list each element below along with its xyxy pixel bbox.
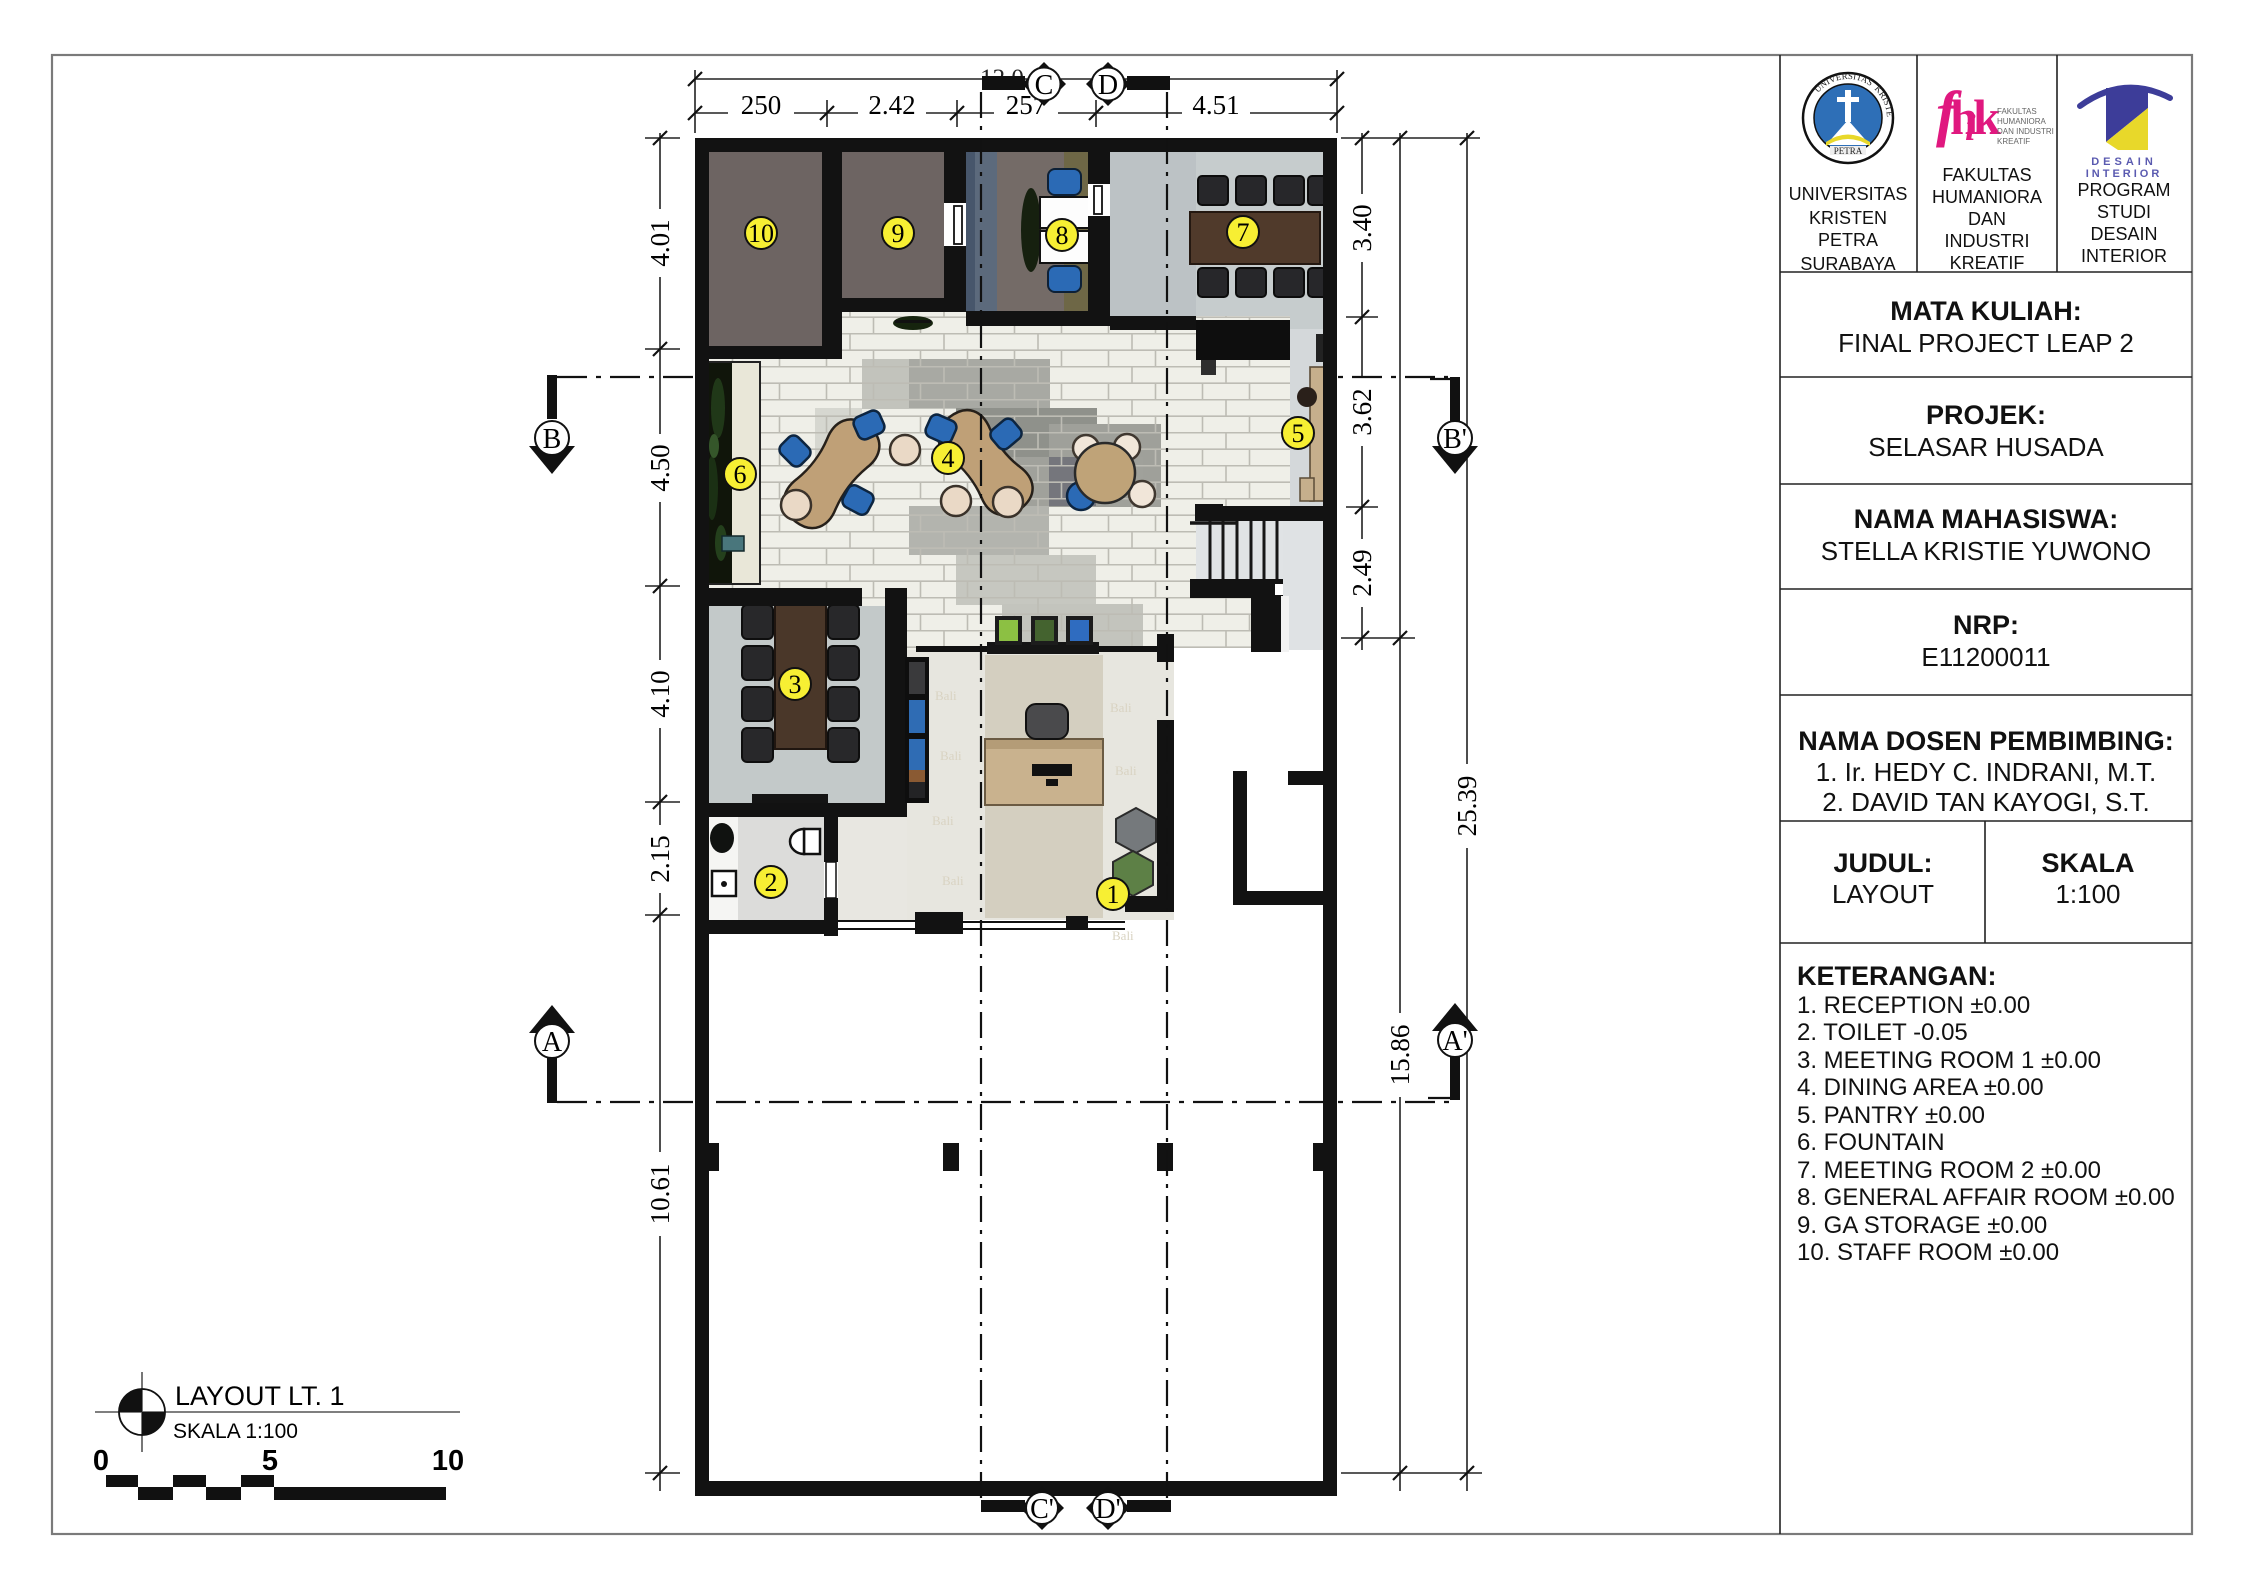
svg-text:10: 10: [432, 1445, 464, 1477]
svg-text:DAN: DAN: [1968, 209, 2006, 229]
svg-text:DESAIN: DESAIN: [2091, 156, 2157, 168]
svg-text:A: A: [542, 1027, 563, 1058]
svg-text:PETRA: PETRA: [1818, 230, 1878, 250]
svg-text:1. RECEPTION ±0.00: 1. RECEPTION ±0.00: [1797, 992, 2030, 1019]
svg-text:1. Ir. HEDY C. INDRANI, M.T.: 1. Ir. HEDY C. INDRANI, M.T.: [1816, 757, 2156, 787]
svg-text:SKALA 1:100: SKALA 1:100: [173, 1420, 298, 1443]
svg-text:PROJEK:: PROJEK:: [1926, 400, 2046, 430]
svg-text:2.15: 2.15: [645, 835, 675, 882]
svg-text:SELASAR HUSADA: SELASAR HUSADA: [1868, 432, 2104, 462]
svg-text:B: B: [543, 424, 562, 455]
svg-text:C': C': [1030, 1494, 1054, 1525]
svg-text:Bali: Bali: [932, 813, 954, 828]
svg-text:4.01: 4.01: [645, 219, 675, 266]
svg-text:E11200011: E11200011: [1921, 642, 2050, 672]
svg-text:INTERIOR: INTERIOR: [2086, 168, 2163, 180]
svg-text:NRP:: NRP:: [1953, 610, 2019, 640]
svg-text:SURABAYA: SURABAYA: [1800, 254, 1895, 274]
svg-text:2.42: 2.42: [868, 90, 915, 120]
svg-text:KRISTEN: KRISTEN: [1809, 208, 1887, 228]
svg-text:FINAL PROJECT LEAP 2: FINAL PROJECT LEAP 2: [1838, 328, 2134, 358]
svg-text:7: 7: [1237, 218, 1250, 247]
svg-text:4. DINING AREA ±0.00: 4. DINING AREA ±0.00: [1797, 1074, 2044, 1101]
svg-text:INTERIOR: INTERIOR: [2081, 246, 2167, 266]
svg-text:4.10: 4.10: [645, 670, 675, 717]
svg-text:0: 0: [93, 1445, 109, 1477]
svg-text:D': D': [1095, 1494, 1120, 1525]
svg-text:10. STAFF ROOM ±0.00: 10. STAFF ROOM ±0.00: [1797, 1239, 2059, 1266]
svg-text:KREATIF: KREATIF: [1950, 253, 2025, 273]
svg-text:Bali: Bali: [1115, 763, 1137, 778]
svg-text:Bali: Bali: [1112, 928, 1134, 943]
svg-text:2. DAVID TAN KAYOGI, S.T.: 2. DAVID TAN KAYOGI, S.T.: [1822, 787, 2150, 817]
svg-text:LAYOUT: LAYOUT: [1832, 879, 1934, 909]
svg-text:25.39: 25.39: [1452, 776, 1482, 837]
svg-text:2: 2: [765, 868, 778, 897]
svg-text:Bali: Bali: [942, 873, 964, 888]
svg-text:Bali: Bali: [935, 688, 957, 703]
svg-text:MATA KULIAH:: MATA KULIAH:: [1890, 296, 2081, 326]
svg-text:5: 5: [262, 1445, 278, 1477]
svg-text:KREATIF: KREATIF: [1997, 137, 2030, 146]
svg-text:NAMA MAHASISWA:: NAMA MAHASISWA:: [1854, 504, 2118, 534]
svg-text:8: 8: [1056, 221, 1069, 250]
svg-text:HUMANIORA: HUMANIORA: [1932, 187, 2042, 207]
svg-text:1: 1: [1107, 880, 1120, 909]
svg-text:PROGRAM: PROGRAM: [2077, 180, 2170, 200]
svg-text:INDUSTRI: INDUSTRI: [1945, 231, 2030, 251]
svg-text:UNIVERSITAS: UNIVERSITAS: [1789, 184, 1908, 204]
svg-text:250: 250: [741, 90, 782, 120]
svg-text:1:100: 1:100: [2055, 879, 2120, 909]
svg-text:6: 6: [734, 460, 747, 489]
svg-text:NAMA DOSEN PEMBIMBING:: NAMA DOSEN PEMBIMBING:: [1798, 726, 2174, 756]
svg-text:15.86: 15.86: [1385, 1025, 1415, 1086]
svg-text:5: 5: [1292, 419, 1305, 448]
svg-text:4: 4: [942, 444, 955, 473]
svg-text:FAKULTAS: FAKULTAS: [1942, 165, 2031, 185]
svg-text:6. FOUNTAIN: 6. FOUNTAIN: [1797, 1129, 1945, 1156]
svg-text:9: 9: [892, 219, 905, 248]
svg-text:9. GA STORAGE ±0.00: 9. GA STORAGE ±0.00: [1797, 1212, 2047, 1239]
svg-text:D: D: [1098, 70, 1118, 101]
svg-text:A': A': [1442, 1026, 1467, 1057]
svg-text:4.51: 4.51: [1192, 90, 1239, 120]
svg-text:3.40: 3.40: [1347, 204, 1377, 251]
svg-text:PETRA: PETRA: [1834, 146, 1863, 156]
svg-text:STUDI: STUDI: [2097, 202, 2151, 222]
svg-text:B': B': [1443, 424, 1467, 455]
svg-text:5. PANTRY ±0.00: 5. PANTRY ±0.00: [1797, 1102, 1985, 1129]
svg-text:DESAIN: DESAIN: [2090, 224, 2157, 244]
svg-text:DAN INDUSTRI: DAN INDUSTRI: [1997, 127, 2054, 136]
svg-text:8. GENERAL AFFAIR ROOM ±0.00: 8. GENERAL AFFAIR ROOM ±0.00: [1797, 1184, 2175, 1211]
svg-text:3.62: 3.62: [1347, 388, 1377, 435]
svg-text:Bali: Bali: [940, 748, 962, 763]
svg-text:LAYOUT LT. 1: LAYOUT LT. 1: [175, 1381, 345, 1411]
svg-text:SKALA: SKALA: [2042, 848, 2135, 878]
svg-text:Bali: Bali: [1110, 700, 1132, 715]
svg-text:KETERANGAN:: KETERANGAN:: [1797, 961, 1997, 991]
svg-text:JUDUL:: JUDUL:: [1834, 848, 1933, 878]
svg-text:7. MEETING ROOM 2 ±0.00: 7. MEETING ROOM 2 ±0.00: [1797, 1157, 2101, 1184]
svg-text:HUMANIORA: HUMANIORA: [1997, 117, 2047, 126]
svg-text:C: C: [1035, 70, 1054, 101]
svg-text:10.61: 10.61: [645, 1164, 675, 1225]
svg-text:2.49: 2.49: [1347, 549, 1377, 596]
svg-text:2. TOILET -0.05: 2. TOILET -0.05: [1797, 1019, 1968, 1046]
svg-text:STELLA KRISTIE YUWONO: STELLA KRISTIE YUWONO: [1821, 536, 2151, 566]
svg-text:FAKULTAS: FAKULTAS: [1997, 107, 2037, 116]
svg-text:4.50: 4.50: [645, 444, 675, 491]
svg-text:3. MEETING ROOM 1 ±0.00: 3. MEETING ROOM 1 ±0.00: [1797, 1047, 2101, 1074]
svg-text:10: 10: [748, 219, 774, 248]
svg-text:3: 3: [789, 670, 802, 699]
